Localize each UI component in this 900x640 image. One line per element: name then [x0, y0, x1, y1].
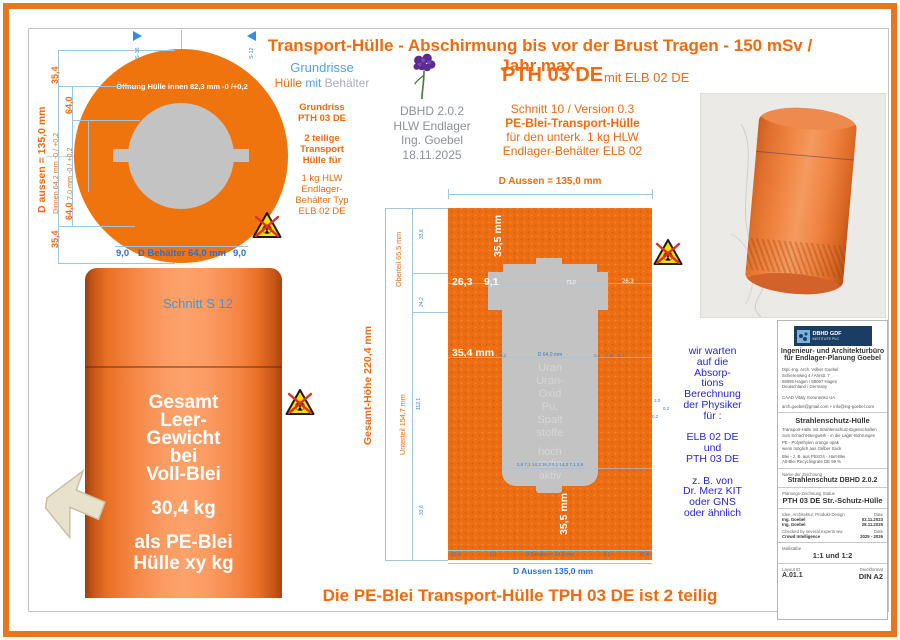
section-unterteil: Unterteil 154,7 mm — [398, 368, 407, 482]
cylinder-seam — [85, 366, 282, 368]
firm-address: Dipl.-Ing. Arch. Volker Goebel Schierenw… — [778, 365, 887, 392]
logo-text-2: INSTITUTE PLC — [813, 337, 842, 341]
dim-line — [115, 246, 248, 247]
dim-label: 112,1 — [416, 388, 422, 420]
firm-mail: arch.goebel@gmail.com + info@ing-goebel.… — [778, 400, 887, 412]
tb-row-value: Ing. Goebel — [782, 522, 805, 527]
dim-label: D Behälter = 64,0 mm — [526, 552, 575, 558]
main-subtitle-3: für den unterk. 1 kg HLW — [480, 130, 665, 144]
dim-label: 33,6 — [419, 220, 425, 248]
flower-icon — [410, 52, 438, 100]
dim-label: 35,4 — [50, 58, 60, 92]
dim-label: 35,4 — [50, 222, 60, 256]
dim-line — [448, 189, 449, 199]
dim-label: 26,3 — [622, 279, 634, 285]
dim-line — [58, 263, 175, 264]
legend-grundriss: Grundriss — [282, 102, 362, 113]
section-oberteil: Oberteil 65,5 mm — [394, 210, 403, 308]
section-flag-right-icon — [247, 31, 256, 41]
dim-label: 35,5 mm — [492, 212, 504, 260]
radiation-prohibited-icon: ☢ — [653, 238, 683, 266]
firm-name-1: Ingenieur- und Architekturbüro — [778, 348, 887, 355]
plan-lug-right — [232, 149, 249, 162]
dim-label: 35,4 mm — [452, 347, 494, 359]
tb-layout-value: A.01.1 — [782, 572, 803, 581]
tb-paragraph-2: PE - Polyethylen orange opak wenn möglic… — [782, 440, 883, 451]
firm-caad: CAAD Vitaly Gorunenko UA — [778, 392, 887, 400]
dim-row: 35,4 0,1 D Behälter = 64,0 mm 0,1 35,4 — [448, 552, 652, 558]
tb-scale-value: 1:1 und 1:2 — [782, 551, 883, 560]
dim-label: D 64,0 mm — [528, 352, 572, 358]
firm-name-2: für Endlager-Planung Goebel — [778, 355, 887, 362]
cylinder-weight-label: Gesamt Leer- Gewicht bei Voll-Blei — [95, 394, 272, 484]
dim-label: 73,0 — [566, 280, 576, 286]
cylinder-kg-label: 30,4 kg — [95, 498, 272, 520]
radiation-prohibited-icon: ☢ — [252, 211, 282, 239]
tb-drawing-name: Strahlenschutz DBHD 2.0.2 — [782, 477, 883, 484]
render-cylinder-seam — [756, 150, 854, 160]
legend-huelle: Hülle — [275, 76, 302, 90]
dim-line — [448, 194, 652, 195]
section-flag-right-label: S-12 — [249, 44, 255, 62]
dim-label: 0,1 — [618, 353, 624, 358]
dim-line — [385, 208, 386, 560]
main-title-pth: PTH 03 DE — [502, 64, 603, 87]
dim-line — [58, 50, 175, 51]
legend-grundrisse: Grundrisse — [277, 60, 367, 75]
pointer-arrow-icon — [39, 464, 111, 550]
render-cylinder-knurl — [746, 237, 846, 277]
legend-pth: PTH 03 DE — [282, 113, 362, 124]
dim-line — [72, 120, 140, 121]
legend-hlw: 1 kg HLW Endlager- Behälter Typ ELB 02 D… — [282, 173, 362, 217]
legend-behaelter: Behälter — [325, 76, 370, 90]
dim-label: 0,1 — [594, 353, 600, 358]
radiation-prohibited-icon: ☢ — [285, 388, 315, 416]
dim-line — [412, 273, 448, 274]
dim-label: 64,0 — [64, 86, 74, 124]
tb-status-value: PTH 03 DE Str.-Schutz-Hülle — [782, 496, 883, 505]
dim-label: 9,0 — [116, 248, 129, 259]
dbhd-logo-icon — [797, 330, 810, 343]
main-subtitle-1: Schnitt 10 / Version 0.3 — [480, 102, 665, 116]
dim-line — [652, 189, 653, 199]
dim-label: 0,1 — [603, 552, 610, 558]
dim-label: 64,0 — [64, 192, 74, 230]
cylinder-pe-label: als PE-Blei Hülle xy kg — [95, 532, 272, 574]
dim-label: 35,5 mm — [558, 490, 570, 538]
dim-label: 24,2 — [419, 288, 425, 316]
main-title-mit: mit ELB 02 DE — [604, 70, 689, 85]
dim-label: 33,6 — [419, 496, 425, 524]
dim-line — [412, 312, 448, 313]
legend-huelle-mit-behaelter: Hülle mit Behälter — [262, 76, 382, 90]
plan-d-aussen-label: D aussen = 135,0 mm — [36, 92, 48, 228]
dim-label: Dinnen 64,2 mm -0 / +0,2 — [51, 116, 60, 230]
dbhd-logo: DBHD GDF INSTITUTE PLC — [794, 326, 872, 346]
dim-line — [412, 208, 413, 560]
dim-row: 2,9 7,1 14,3 15,3 0,1 14,3 7,1 2,9 — [448, 462, 652, 467]
section-container-shoulder — [488, 272, 608, 310]
physics-note: wir warten auf die Absorp- tions Berechn… — [655, 346, 770, 519]
section-content-label: Uran Uran- Oxid Pu, Spalt stoffe — [502, 362, 598, 440]
dim-label: 0,1 — [500, 353, 506, 358]
title-block: DBHD GDF INSTITUTE PLC Ingenieur- und Ar… — [777, 320, 888, 620]
tb-row-value: 2025 - 2026 — [860, 534, 883, 539]
dim-label: 9,1 — [484, 276, 499, 288]
tb-row-value: Crowd Intelligence — [782, 534, 820, 539]
main-subtitle-2: PE-Blei-Transport-Hülle — [480, 116, 665, 130]
dim-label: 0,1 — [490, 552, 497, 558]
tb-format-value: DIN A2 — [859, 572, 883, 581]
dim-label: 35,4 — [451, 552, 461, 558]
dim-line — [385, 208, 448, 209]
plan-container-circle — [128, 103, 234, 209]
dim-label: 0,9 — [606, 353, 612, 358]
tb-heading: Strahlenschutz-Hülle — [782, 416, 883, 425]
tb-paragraph-3: Blei - z. B. aus PbSO4 - Hart-Blei Alt-B… — [782, 454, 883, 465]
dim-line — [448, 563, 652, 564]
section-d-aussen-bottom: D Aussen 135,0 mm — [488, 566, 618, 576]
legend-mit: mit — [305, 76, 321, 90]
dim-line — [502, 468, 652, 469]
section-gesamt-hoehe: Gesamt-Höhe 220,4 mm — [362, 315, 374, 455]
section-flag-left-label: S-16 — [135, 44, 141, 62]
cylinder-schnitt-label: Schnitt S 12 — [138, 296, 258, 311]
section-d-aussen-top: D Aussen = 135,0 mm — [460, 176, 640, 187]
dim-line — [385, 560, 448, 561]
meta-project-info: DBHD 2.0.2 HLW Endlager Ing. Goebel 18.1… — [382, 104, 482, 162]
main-subtitle-4: Endlager-Behälter ELB 02 — [480, 144, 665, 158]
footer-title: Die PE-Blei Transport-Hülle TPH 03 DE is… — [260, 586, 780, 606]
dim-label: 9,0 — [233, 248, 246, 259]
plan-d-behaelter-label: D Behälter 64,0 mm — [136, 248, 228, 259]
tb-paragraph-1: Transport-Hülle mit Strahlenschutz-Eigen… — [782, 427, 883, 438]
render-cylinder — [744, 104, 858, 298]
tb-row-value: 28.11.2025 — [862, 522, 883, 527]
dim-label: 35,4 — [639, 552, 649, 558]
dim-line — [448, 550, 652, 551]
dim-line — [88, 120, 89, 192]
legend-teilige: 2 teilige Transport Hülle für — [282, 133, 362, 166]
dim-label: 26,3 — [452, 276, 472, 288]
section-flag-left-icon — [133, 31, 142, 41]
centerline — [181, 30, 182, 50]
plan-lug-left — [113, 149, 130, 162]
